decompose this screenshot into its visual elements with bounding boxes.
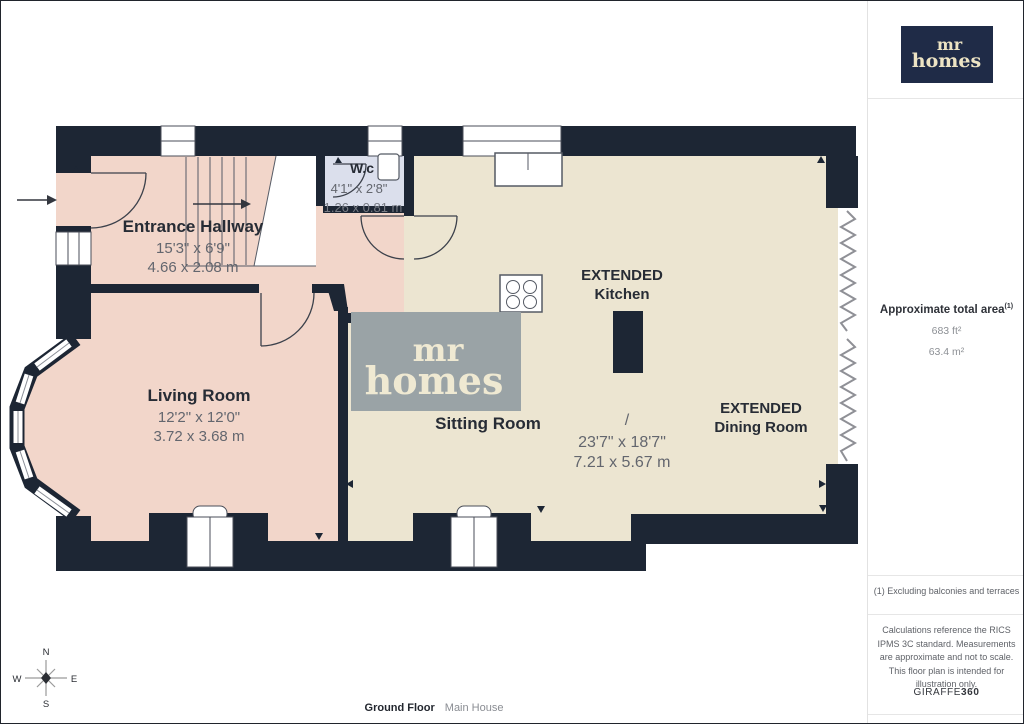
giraffe360-name: GIRAFFE <box>913 687 961 698</box>
dims-open-imperial: 23'7" x 18'7" <box>578 434 666 451</box>
label-living-room: Living Room <box>148 386 251 405</box>
total-area-title-text: Approximate total area <box>880 304 1005 316</box>
dims-wc-imperial: 4'1" x 2'8" <box>331 181 388 196</box>
total-area-title: Approximate total area(1) <box>868 303 1024 316</box>
floorplan-page: mr homes Entrance Hallway 15'3" x 6'9" 4… <box>0 0 1024 724</box>
divider <box>868 575 1024 576</box>
footer-caption: Ground FloorMain House <box>1 702 867 714</box>
label-dining-line1: EXTENDED <box>720 400 802 417</box>
dims-wc-metric: 1.26 x 0.81 m <box>324 200 403 215</box>
watermark-line2: homes <box>365 358 504 403</box>
open-plan-right-strip <box>826 208 838 464</box>
total-area-superscript: (1) <box>1005 303 1014 310</box>
stove-icon <box>500 275 542 312</box>
giraffe360-brand: GIRAFFE360 <box>868 687 1024 698</box>
dims-open-metric: 7.21 x 5.67 m <box>574 454 671 471</box>
label-wc: W.c <box>350 160 374 176</box>
giraffe360-suffix: 360 <box>961 687 980 698</box>
watermark-logo: mr homes <box>351 312 521 411</box>
label-entrance-hallway: Entrance Hallway <box>123 217 264 236</box>
total-area-imperial: 683 ft² <box>868 325 1024 337</box>
floor-label: Ground Floor <box>365 702 435 714</box>
entrance-opening <box>56 173 91 228</box>
house-label: Main House <box>445 702 504 714</box>
doorway-strip <box>404 214 414 313</box>
total-area-metric: 63.4 m² <box>868 346 1024 358</box>
disclaimer-text: Calculations reference the RICS IPMS 3C … <box>868 624 1024 692</box>
brand-logo-line2: homes <box>912 52 981 71</box>
label-kitchen-line1: EXTENDED <box>581 267 663 284</box>
label-kitchen-line2: Kitchen <box>594 286 649 303</box>
bifold-doors <box>841 211 855 461</box>
dims-entrance-metric: 4.66 x 2.08 m <box>148 259 239 276</box>
compass-west: W <box>13 674 22 685</box>
wc-basin <box>378 154 399 180</box>
dims-living-imperial: 12'2" x 12'0" <box>158 409 240 426</box>
compass-north: N <box>43 647 50 658</box>
divider <box>868 98 1024 99</box>
label-sitting-room: Sitting Room <box>435 414 541 433</box>
entry-arrow <box>17 195 57 205</box>
area-footnote: (1) Excluding balconies and terraces <box>868 586 1024 596</box>
brand-logo: mr homes <box>901 26 993 83</box>
floorplan-svg: mr homes Entrance Hallway 15'3" x 6'9" 4… <box>1 1 867 724</box>
compass-east: E <box>71 674 77 685</box>
label-dining-line2: Dining Room <box>714 419 807 436</box>
open-plan-separator: / <box>625 412 630 429</box>
divider <box>868 714 1024 715</box>
dims-entrance-imperial: 15'3" x 6'9" <box>156 240 230 257</box>
divider <box>868 614 1024 615</box>
hallway-door-gap <box>259 284 312 293</box>
dims-living-metric: 3.72 x 3.68 m <box>154 428 245 445</box>
total-area-block: Approximate total area(1) 683 ft² 63.4 m… <box>868 303 1024 358</box>
floorplan-canvas: mr homes Entrance Hallway 15'3" x 6'9" 4… <box>1 1 867 724</box>
kitchen-island <box>613 311 643 373</box>
compass-icon: N S W E <box>13 647 78 710</box>
sidebar: mr homes Approximate total area(1) 683 f… <box>867 1 1024 724</box>
